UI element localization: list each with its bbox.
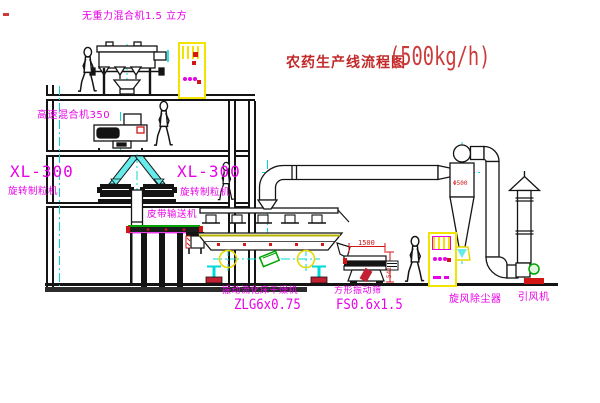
dim-sieve-length: 1500 [358,240,375,247]
cabinet-buttons [433,257,437,261]
person-figure [154,101,173,145]
flow-diagram-canvas: 农药生产线流程图 (500kg/h) 无重力混合机1.5 立方 高速混合机350… [0,0,600,403]
dryer-motor-green [260,251,280,267]
cyclone-vortex-finder [454,145,471,162]
diagram-capacity: (500kg/h) [389,42,490,72]
cabinet-stripe-panel [432,236,451,250]
discharge-downpipe-drawing [132,190,143,227]
label-dryer-name: 振动流化床干燥机 [222,287,298,296]
label-sieve-model: FS0.6x1.5 [336,298,403,312]
fan-motor [529,264,539,274]
label-dryer-model: ZLG6x0.75 [234,298,301,312]
diagram-title: 农药生产线流程图 [286,52,406,72]
dryer-spring-mounts [202,215,326,223]
fan-base [524,278,544,284]
label-granulator-mid-name: 旋转制粒机 [180,188,230,198]
dryer-legs [206,266,327,283]
dim-sieve-height: 541 [387,267,393,278]
return-pipe-drawing [471,147,519,279]
label-granulator-mid-model: XL-300 [177,164,241,180]
dim-cyclone-diameter: Φ500 [453,181,467,187]
stack-cap [510,177,540,191]
label-granulator-left-model: XL-300 [10,164,74,180]
person-figure [405,236,424,281]
granulator-left-drawing [97,179,134,202]
label-fan: 引风机 [518,293,550,303]
label-sieve-name: 方形振动筛 [334,287,382,296]
exhaust-duct-drawing [258,166,452,210]
fluid-bed-dryer-drawing [197,208,350,283]
fan-housing [516,263,530,277]
gravity-free-mixer-drawing [90,42,168,94]
label-high-speed-mixer: 高速混合机350 [37,111,110,121]
label-cyclone: 旋风除尘器 [449,295,502,305]
control-cabinet-top [178,42,206,99]
granulator-mid-drawing [140,179,177,202]
label-gravity-free-mixer: 无重力混合机1.5 立方 [82,12,187,22]
red-tick-mark [3,13,9,16]
cabinet-buttons [183,77,187,81]
control-cabinet-bottom [428,232,457,287]
label-granulator-left-name: 旋转制粒机 [8,187,58,197]
label-belt-conveyor: 皮带输送机 [147,210,197,220]
